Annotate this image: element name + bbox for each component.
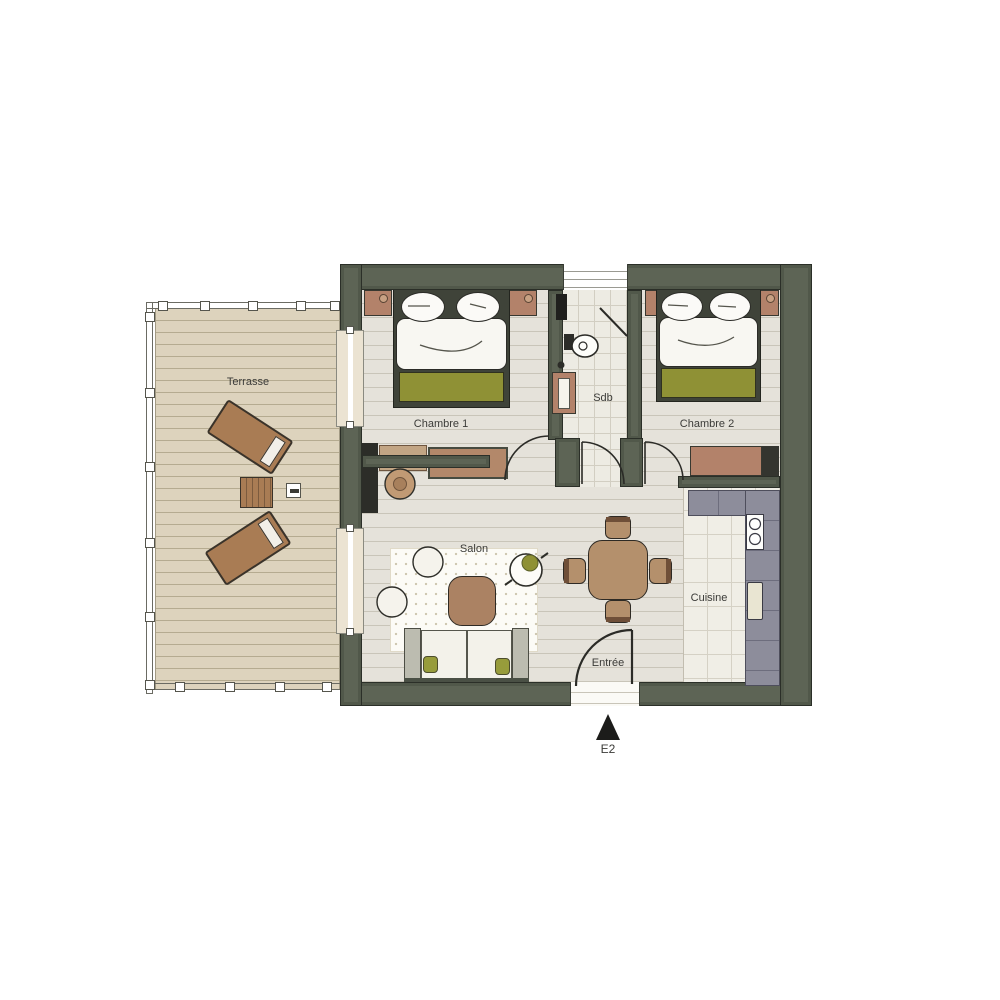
washbasin: [558, 378, 570, 409]
railing-post: [330, 301, 340, 311]
terrace-railing-left: [146, 302, 153, 694]
bed-duvet: [396, 318, 507, 370]
sofa-pillow: [423, 656, 438, 673]
entrance-marker-icon: [596, 714, 620, 740]
terrace-railing-top: [146, 302, 342, 309]
railing-post: [225, 682, 235, 692]
terrace-window-bedroom: [336, 330, 364, 427]
coffee-table: [448, 576, 496, 626]
terrace-side-table: [240, 477, 273, 508]
bed-pillow: [456, 292, 500, 322]
bed-pillow: [661, 292, 703, 321]
chair-backrest: [564, 559, 569, 583]
bathroom-window: [563, 264, 628, 290]
entrance-threshold: [570, 682, 640, 706]
lamp: [379, 294, 388, 303]
dining-chair: [649, 558, 672, 584]
partition-wall: [555, 438, 580, 487]
cooktop: [746, 514, 764, 550]
terrace-window-salon: [336, 528, 364, 634]
nightstand: [509, 290, 537, 316]
railing-post: [200, 301, 210, 311]
dining-chair: [605, 516, 631, 539]
railing-post: [322, 682, 332, 692]
partition-wall: [362, 455, 490, 468]
entrance-marker-label: E2: [601, 742, 616, 756]
bed-pillow: [401, 292, 445, 322]
floorplan-canvas: Terrasse Chambre 1 Sdb Chambre 2 Salon C…: [0, 0, 1000, 1000]
bed-duvet: [659, 317, 758, 367]
window-frame-post: [346, 421, 354, 429]
window-frame-post: [346, 326, 354, 334]
railing-post: [248, 301, 258, 311]
chair-backrest: [666, 559, 671, 583]
exterior-wall-right: [780, 264, 812, 706]
media-block: [362, 443, 378, 513]
railing-post: [145, 612, 155, 622]
nightstand: [364, 290, 392, 316]
bed-blanket: [399, 372, 504, 402]
sofa-pillow: [495, 658, 510, 675]
sofa-armrest: [512, 628, 529, 684]
lamp: [524, 294, 533, 303]
railing-post: [145, 388, 155, 398]
dining-table: [588, 540, 648, 600]
railing-post: [175, 682, 185, 692]
railing-post: [145, 462, 155, 472]
dining-chair: [563, 558, 586, 584]
bed-pillow: [709, 292, 751, 321]
lamp: [766, 294, 775, 303]
railing-post: [145, 312, 155, 322]
partition-wall: [627, 290, 642, 440]
dresser: [690, 446, 762, 476]
chair-backrest: [606, 517, 630, 522]
dining-chair: [605, 600, 631, 623]
terrace-small-box: [286, 483, 301, 498]
kitchen-sink: [747, 582, 763, 620]
railing-post: [158, 301, 168, 311]
railing-post: [296, 301, 306, 311]
radiator: [556, 294, 567, 320]
railing-post: [145, 538, 155, 548]
partition-wall: [620, 438, 643, 487]
railing-post: [145, 680, 155, 690]
window-frame-post: [346, 628, 354, 636]
vanity: [552, 372, 576, 414]
toilet-tank: [564, 334, 574, 350]
bed-blanket: [661, 368, 756, 398]
wardrobe: [762, 446, 779, 476]
box-detail: [290, 489, 299, 493]
sofa-armrest: [404, 628, 421, 684]
railing-post: [275, 682, 285, 692]
partition-wall: [678, 476, 780, 488]
window-frame-post: [346, 524, 354, 532]
chair-backrest: [606, 617, 630, 622]
